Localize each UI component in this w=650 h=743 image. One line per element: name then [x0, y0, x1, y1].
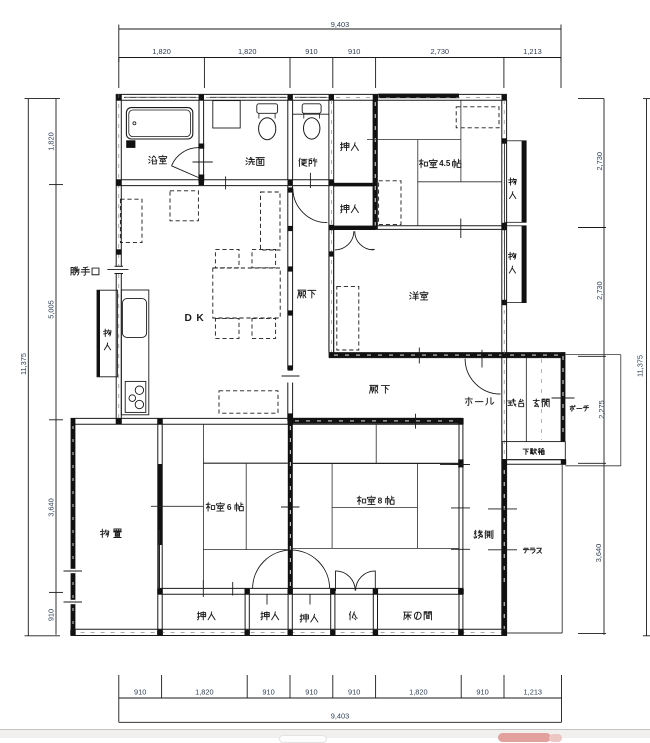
svg-text:1,213: 1,213	[524, 688, 543, 697]
svg-text:2,730: 2,730	[595, 281, 604, 300]
svg-text:11,375: 11,375	[19, 353, 28, 375]
svg-text:DK: DK	[185, 313, 209, 324]
svg-text:910: 910	[305, 47, 317, 56]
svg-text:910: 910	[476, 688, 488, 697]
svg-text:9,403: 9,403	[331, 712, 350, 721]
svg-text:910: 910	[348, 47, 360, 56]
svg-text:2,730: 2,730	[431, 47, 450, 56]
svg-text:5,005: 5,005	[46, 300, 55, 319]
svg-text:1,820: 1,820	[195, 688, 214, 697]
svg-text:910: 910	[134, 688, 146, 697]
svg-text:1,820: 1,820	[46, 132, 55, 151]
svg-text:910: 910	[262, 688, 274, 697]
svg-text:6: 6	[227, 502, 232, 512]
svg-text:1,820: 1,820	[238, 47, 257, 56]
svg-text:8: 8	[378, 495, 383, 505]
svg-text:910: 910	[305, 688, 317, 697]
svg-text:3,640: 3,640	[594, 544, 603, 563]
svg-text:4.5: 4.5	[439, 159, 451, 168]
svg-text:1,820: 1,820	[409, 688, 428, 697]
svg-text:1,213: 1,213	[523, 47, 542, 56]
svg-text:910: 910	[46, 609, 55, 621]
svg-text:3,640: 3,640	[46, 498, 55, 517]
svg-text:1,820: 1,820	[152, 47, 171, 56]
svg-text:910: 910	[348, 688, 360, 697]
svg-text:2,730: 2,730	[595, 152, 604, 171]
svg-text:9,403: 9,403	[331, 20, 350, 29]
svg-text:11,375: 11,375	[636, 355, 645, 377]
svg-text:2,275: 2,275	[597, 400, 606, 419]
